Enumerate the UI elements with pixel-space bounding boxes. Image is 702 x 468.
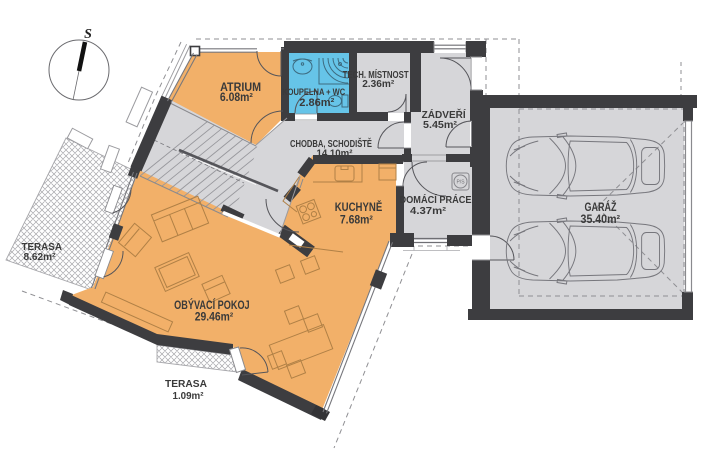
svg-text:2.36m²: 2.36m² [362, 78, 394, 90]
svg-text:S: S [84, 27, 92, 42]
svg-text:2.86m²: 2.86m² [299, 97, 334, 109]
svg-text:5.45m²: 5.45m² [423, 119, 458, 131]
svg-text:KUCHYNĚ: KUCHYNĚ [335, 201, 383, 214]
svg-text:35.40m²: 35.40m² [581, 214, 621, 226]
svg-text:GARÁŽ: GARÁŽ [585, 201, 617, 214]
svg-text:6.08m²: 6.08m² [220, 92, 253, 104]
svg-text:OBÝVACÍ POKOJ: OBÝVACÍ POKOJ [174, 299, 250, 312]
svg-text:7.68m²: 7.68m² [340, 215, 373, 227]
svg-text:4.37m²: 4.37m² [410, 205, 447, 217]
svg-text:29.46m²: 29.46m² [195, 312, 234, 324]
svg-text:14.10m²: 14.10m² [317, 148, 353, 160]
svg-text:8.62m²: 8.62m² [24, 251, 56, 263]
svg-text:1.09m²: 1.09m² [173, 390, 204, 402]
svg-text:TERASA: TERASA [165, 379, 207, 390]
svg-text:P/S: P/S [456, 180, 465, 186]
